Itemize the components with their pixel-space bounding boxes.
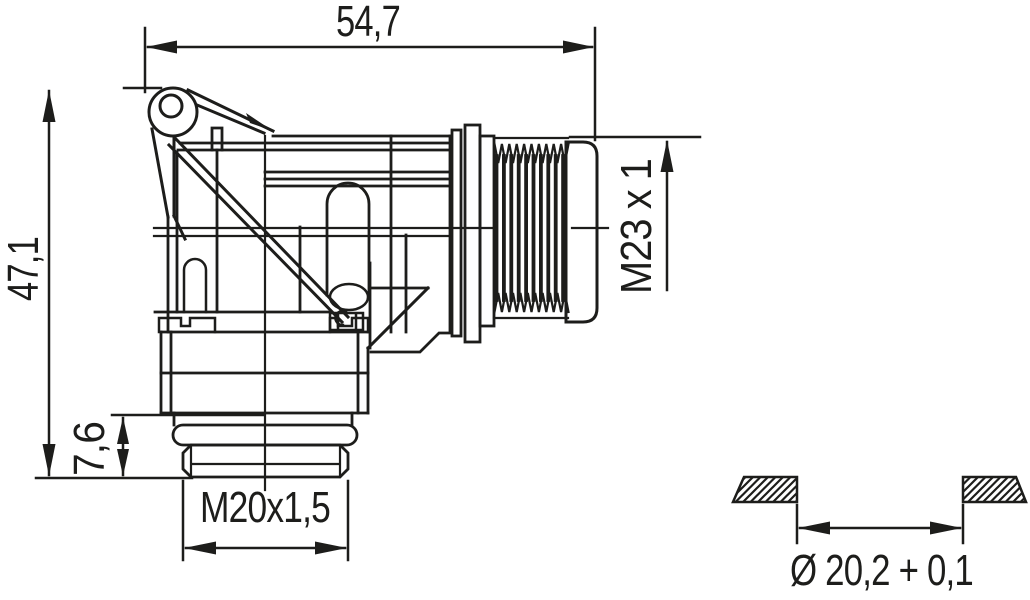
dim-cable-gland-thread-label: M20x1,5: [200, 483, 330, 532]
connector-dimensional-drawing: 54,7 47,1 7,6 M23 x 1: [0, 0, 1030, 600]
pivot-hole: [160, 95, 182, 117]
dim-gasket-bore: Ø 20,2 + 0,1: [790, 505, 973, 595]
dim-cable-gland-thread: M20x1,5: [183, 481, 348, 560]
dim-mating-thread-label: M23 x 1: [612, 159, 661, 294]
coupling-nut: [566, 142, 597, 322]
cable-clamp-lever: [149, 88, 348, 325]
dimension-annotations: 54,7 47,1 7,6 M23 x 1: [0, 0, 973, 595]
dim-overall-length: 54,7: [145, 0, 595, 140]
connector-outline: [149, 88, 1026, 502]
dim-overall-length-label: 54,7: [336, 0, 400, 46]
dim-overall-height-label: 47,1: [0, 237, 48, 301]
flange-rings: [452, 125, 494, 342]
dim-overall-height: 47,1: [0, 88, 192, 478]
sealing-washer-section: [733, 477, 1026, 502]
dim-gasket-bore-label: Ø 20,2 + 0,1: [790, 546, 973, 595]
grommet-bulb: [330, 284, 368, 310]
grommet-dome: [327, 183, 369, 295]
left-slot: [184, 259, 206, 312]
dim-mating-thread: M23 x 1: [570, 137, 700, 294]
m23-thread: [494, 138, 569, 318]
dim-flange-height-label: 7,6: [65, 422, 114, 476]
technical-drawing: 54,7 47,1 7,6 M23 x 1: [0, 0, 1030, 600]
